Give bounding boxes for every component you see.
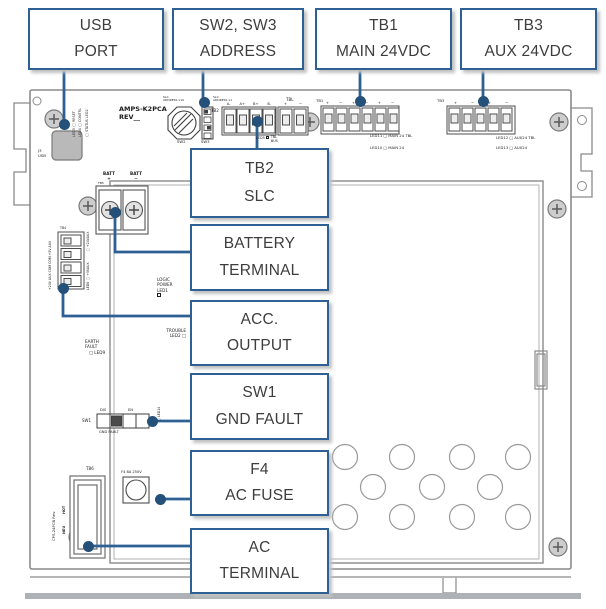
- callout-usb-port: USB PORT: [28, 8, 164, 70]
- trouble-label: TROUBLE LED2 □: [150, 328, 186, 339]
- callout-tb3-aux-24vdc: TB3 AUX 24VDC: [460, 8, 597, 70]
- callout-tb2-slc: TB2 SLC: [190, 148, 329, 218]
- acc-led-top: □ +24VAUX: [86, 226, 90, 252]
- sw3-label: SW3: [201, 140, 210, 145]
- leader-dot-tb2: [252, 116, 263, 127]
- leader-dot-usb: [59, 119, 70, 130]
- acc-ref: TB4: [60, 226, 66, 230]
- callout-tb1-main-24vdc: TB1 MAIN 24VDC: [315, 8, 452, 70]
- ac-hot-label: HOT: [62, 500, 66, 514]
- led5-name: LED5: [256, 136, 265, 140]
- sw1-en-label: EN: [128, 408, 133, 412]
- sw1-dis-label: DIS: [100, 408, 106, 412]
- battery-terminal-block: [96, 186, 148, 234]
- tb3-ref: TB3: [437, 99, 444, 104]
- right-edge-connector: [535, 351, 547, 389]
- ac-pcb-label: CPS-24PCB Rev.: [52, 497, 57, 541]
- tbl-marks: + −: [278, 102, 308, 107]
- batt-pos-label: BATT +: [97, 171, 121, 182]
- board-title: AMPS-K2PCA REV__: [119, 105, 167, 121]
- usb-ref-label: J3 USB: [38, 149, 46, 158]
- tb1-terminal-block: [321, 106, 399, 134]
- callout-sw1-gnd-fault: SW1 GND FAULT: [190, 373, 329, 440]
- tb1-led10-label: LED10 □ MAIN 24: [370, 146, 404, 151]
- battery-ref: TB5: [98, 182, 104, 186]
- leader-dot-ac: [83, 541, 94, 552]
- status-led-labels: LED3 □ RESET LED4 □ CONTRL □ STATUS LED2: [72, 95, 89, 137]
- callout-sw2-sw3-address: SW2, SW3 ADDRESS: [172, 8, 304, 70]
- led-label-reset: LED3 □ RESET: [72, 95, 76, 137]
- tbl-led5-label: LED5 TBL BUS: [256, 136, 278, 143]
- diagram-canvas: AMPS-K2PCA REV__ LED3 □ RESET LED4 □ CON…: [0, 0, 606, 609]
- callout-f4-ac-fuse: F4 AC FUSE: [190, 450, 329, 516]
- tb2-terminal-block: [222, 107, 276, 135]
- f4-fuse-holder: [123, 477, 149, 503]
- callout-battery-terminal: BATTERY TERMINAL: [190, 224, 329, 291]
- acc-pin-labels: +24V AUX COM COM +5V AUX: [48, 232, 52, 290]
- logic-power-label: LOGIC POWER LED1: [157, 277, 173, 298]
- leader-dot-f4: [155, 494, 166, 505]
- tb2-ref: TB2: [211, 108, 219, 113]
- tb2-terminal-letters: A- A+ B+ B-: [222, 102, 276, 106]
- usb-text: USB: [38, 153, 46, 158]
- leader-dot-battery: [110, 207, 121, 218]
- callout-ac-terminal: AC TERMINAL: [190, 528, 329, 594]
- ac-neu-label: NEU: [62, 520, 66, 534]
- led1-indicator: [157, 293, 161, 297]
- tb3-led13-label: LED13 □ AUX24: [496, 146, 527, 151]
- led-label-status: □ STATUS LED2: [85, 95, 89, 137]
- callout-acc-output: ACC. OUTPUT: [190, 300, 329, 366]
- sw2-label: SW2: [177, 140, 186, 145]
- leader-dot-sw23: [199, 97, 210, 108]
- leader-dot-acc: [58, 283, 69, 294]
- tb3-led12-label: LED12 □ AUX24 TBL: [496, 136, 535, 141]
- f4-label: F4 8A 250V: [121, 470, 142, 474]
- sw1-caption: GND FAULT: [99, 430, 119, 434]
- leader-dot-tb3: [478, 96, 489, 107]
- earth-fault-label: EARTH FAULT □ LED9: [85, 339, 105, 355]
- sw1-switch: [97, 414, 149, 428]
- leader-dot-sw1: [147, 416, 158, 427]
- vent-holes: [333, 445, 531, 530]
- acc-led-bottom: LED6 □ +5VAUX: [86, 260, 90, 290]
- tb3-terminal-block: [447, 106, 515, 134]
- sw2-rotary-switch: [168, 107, 200, 139]
- tb1-led11-label: LED11 □ MAIN 24 TBL: [370, 134, 412, 139]
- led-label-contrl: LED4 □ CONTRL: [78, 95, 82, 137]
- sw1-led-label: □ LED14: [157, 402, 161, 422]
- board-title-rev: REV__: [119, 113, 140, 121]
- leader-dot-tb1: [355, 96, 366, 107]
- tbl-terminal-block: [278, 107, 308, 135]
- sw2-caption: SLC ADDRESS x10: [163, 96, 184, 103]
- board-title-name: AMPS-K2PCA: [119, 105, 167, 113]
- led5-indicator: [266, 136, 269, 139]
- acc-output-connector: [58, 232, 84, 289]
- batt-neg-label: BATT −: [124, 171, 148, 182]
- ac-ref: TB6: [86, 466, 94, 471]
- sw1-label: SW1: [82, 418, 91, 423]
